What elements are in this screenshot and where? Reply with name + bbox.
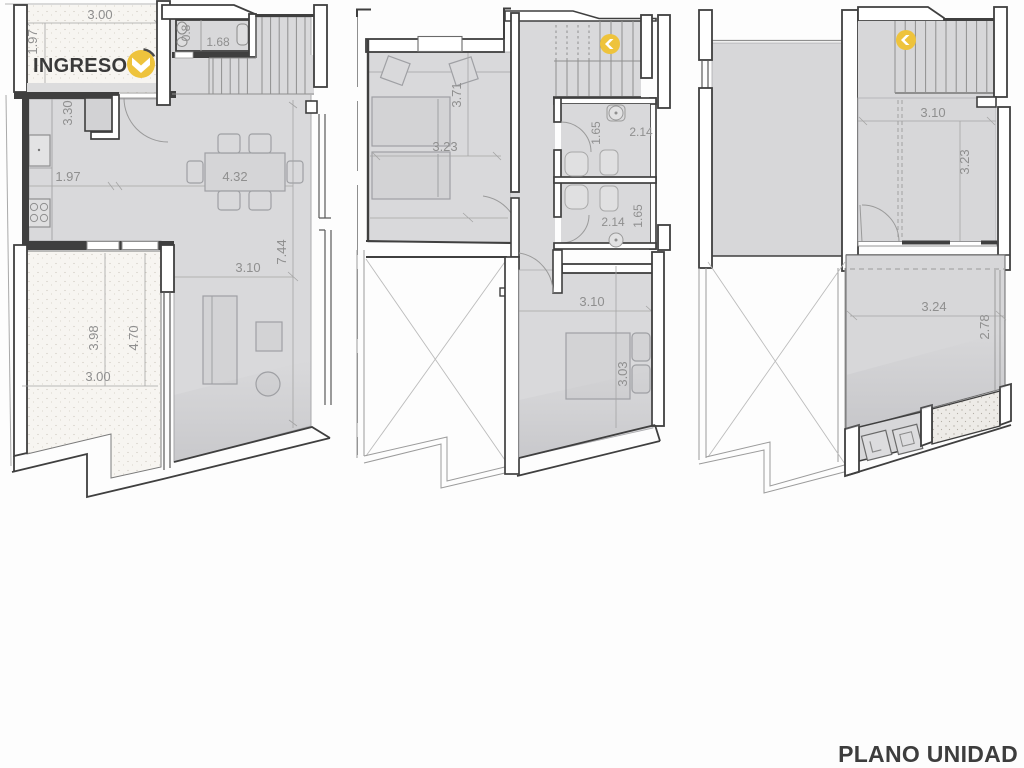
svg-text:PLANO UNIDAD: PLANO UNIDAD [838,741,1018,767]
svg-text:3.10: 3.10 [579,294,604,309]
svg-text:1.65: 1.65 [631,204,645,228]
svg-text:3.23: 3.23 [957,149,972,174]
svg-text:3.71: 3.71 [449,82,464,107]
svg-text:2.14: 2.14 [629,125,653,139]
svg-text:2.78: 2.78 [977,314,992,339]
svg-text:3.00: 3.00 [85,369,110,384]
svg-text:3.23: 3.23 [432,139,457,154]
svg-text:0.8: 0.8 [179,24,193,41]
svg-text:3.00: 3.00 [87,7,112,22]
svg-text:3.24: 3.24 [921,299,946,314]
svg-text:3.30: 3.30 [60,100,75,125]
svg-text:2.14: 2.14 [601,215,625,229]
svg-text:1.65: 1.65 [589,121,603,145]
svg-text:1.97: 1.97 [55,169,80,184]
svg-text:3.10: 3.10 [235,260,260,275]
svg-text:3.98: 3.98 [86,325,101,350]
svg-text:1.68: 1.68 [206,35,230,49]
svg-text:INGRESO: INGRESO [33,55,127,77]
svg-text:4.70: 4.70 [126,325,141,350]
svg-text:7.44: 7.44 [274,239,289,264]
svg-text:4.32: 4.32 [222,169,247,184]
svg-text:3.10: 3.10 [920,105,945,120]
